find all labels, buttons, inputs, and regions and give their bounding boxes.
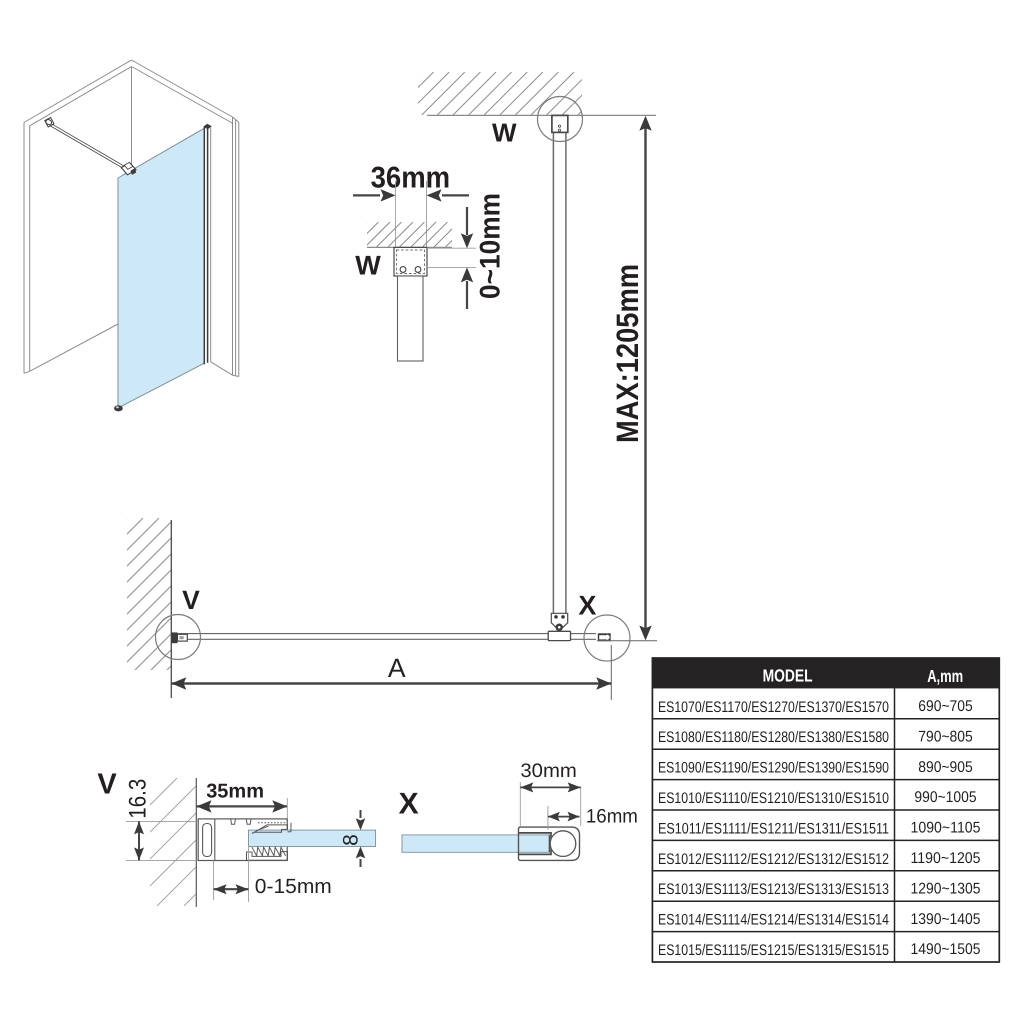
svg-text:ES1090/ES1190/ES1290/ES1390/ES: ES1090/ES1190/ES1290/ES1390/ES1590 bbox=[658, 760, 889, 777]
svg-text:ES1015/ES1115/ES1215/ES1315/ES: ES1015/ES1115/ES1215/ES1315/ES1515 bbox=[658, 942, 889, 959]
svg-text:MAX:1205mm: MAX:1205mm bbox=[610, 264, 645, 443]
svg-text:X: X bbox=[578, 591, 596, 621]
svg-text:ES1011/ES1111/ES1211/ES1311/ES: ES1011/ES1111/ES1211/ES1311/ES1511 bbox=[658, 820, 889, 837]
svg-text:8: 8 bbox=[339, 834, 362, 846]
svg-text:36mm: 36mm bbox=[371, 161, 451, 194]
svg-text:1290~1305: 1290~1305 bbox=[911, 880, 981, 897]
svg-text:1490~1505: 1490~1505 bbox=[911, 941, 981, 958]
svg-text:A: A bbox=[388, 653, 406, 683]
svg-text:1390~1405: 1390~1405 bbox=[911, 911, 981, 928]
svg-text:ES1010/ES1110/ES1210/ES1310/ES: ES1010/ES1110/ES1210/ES1310/ES1510 bbox=[658, 790, 889, 807]
svg-text:1090~1105: 1090~1105 bbox=[911, 820, 981, 837]
svg-text:0~10mm: 0~10mm bbox=[474, 193, 506, 299]
svg-text:1190~1205: 1190~1205 bbox=[911, 850, 981, 867]
svg-text:ES1013/ES1113/ES1213/ES1313/ES: ES1013/ES1113/ES1213/ES1313/ES1513 bbox=[658, 881, 889, 898]
svg-text:16mm: 16mm bbox=[586, 806, 638, 828]
svg-text:V: V bbox=[182, 585, 200, 615]
svg-text:MODEL: MODEL bbox=[763, 666, 813, 686]
svg-text:690~705: 690~705 bbox=[918, 698, 973, 715]
svg-text:790~805: 790~805 bbox=[918, 728, 973, 745]
svg-text:W: W bbox=[492, 118, 517, 148]
svg-text:0-15mm: 0-15mm bbox=[255, 875, 332, 898]
svg-text:30mm: 30mm bbox=[520, 760, 577, 782]
svg-text:ES1070/ES1170/ES1270/ES1370/ES: ES1070/ES1170/ES1270/ES1370/ES1570 bbox=[658, 699, 889, 716]
svg-text:35mm: 35mm bbox=[206, 780, 264, 802]
svg-text:16.3: 16.3 bbox=[125, 779, 152, 819]
svg-text:ES1014/ES1114/ES1214/ES1314/ES: ES1014/ES1114/ES1214/ES1314/ES1514 bbox=[658, 912, 889, 929]
svg-text:X: X bbox=[399, 788, 419, 821]
svg-text:990~1005: 990~1005 bbox=[914, 789, 976, 806]
svg-text:W: W bbox=[355, 251, 381, 281]
svg-text:ES1080/ES1180/ES1280/ES1380/ES: ES1080/ES1180/ES1280/ES1380/ES1580 bbox=[658, 729, 889, 746]
svg-text:V: V bbox=[97, 769, 117, 801]
svg-text:A,mm: A,mm bbox=[927, 666, 963, 686]
svg-text:890~905: 890~905 bbox=[918, 759, 973, 776]
svg-text:ES1012/ES1112/ES1212/ES1312/ES: ES1012/ES1112/ES1212/ES1312/ES1512 bbox=[658, 851, 889, 868]
